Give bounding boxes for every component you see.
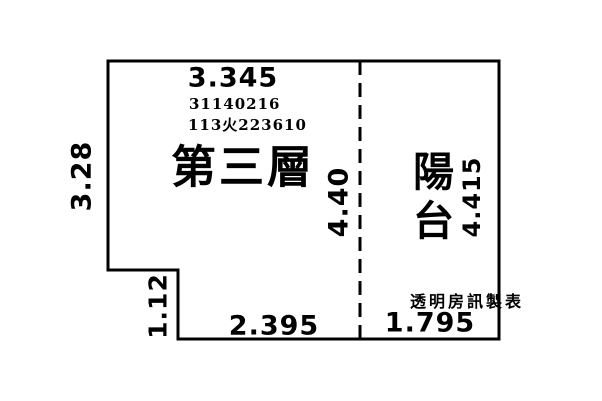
dimension-bottom-left-width: 2.395 — [229, 313, 319, 340]
dimension-left-height: 3.28 — [69, 141, 96, 212]
producer-watermark: 透明房訊製表 — [410, 294, 524, 310]
registration-number-line1: 31140216 — [189, 97, 281, 112]
floorplan-canvas: 3.345 31140216 113火223610 第三層 3.28 4.40 … — [0, 0, 602, 401]
dimension-top-width: 3.345 — [188, 65, 278, 92]
dimension-bottom-right-width: 1.795 — [385, 310, 475, 337]
balcony-label: 陽台 — [409, 150, 450, 248]
registration-number-line2: 113火223610 — [188, 118, 307, 133]
floor-label: 第三層 — [171, 145, 315, 190]
dimension-notch-height: 1.12 — [146, 273, 171, 339]
dimension-balcony-height: 4.415 — [460, 157, 484, 238]
dimension-divider-height: 4.40 — [326, 167, 353, 238]
